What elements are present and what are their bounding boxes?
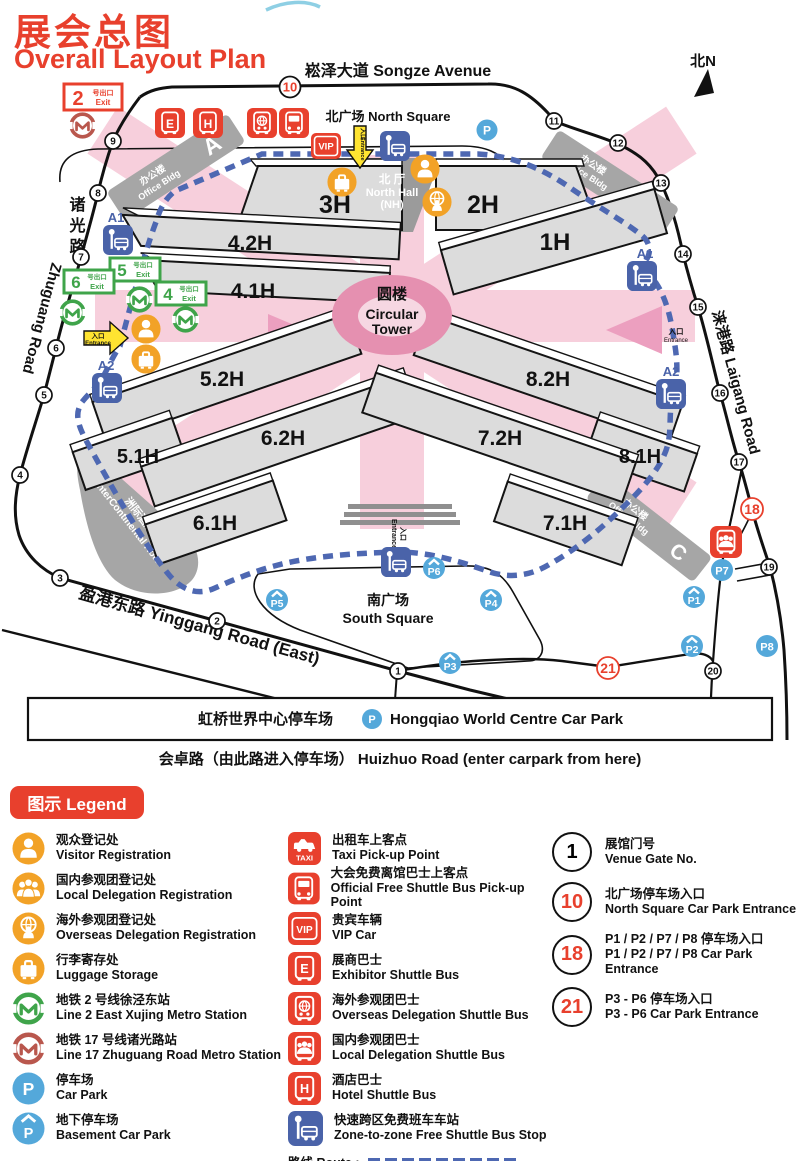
svg-text:VIP: VIP [296, 924, 313, 935]
luggage-storage-icon-west [131, 344, 160, 373]
svg-text:H: H [204, 117, 213, 131]
legend-item-official-shuttle: 大会免费离馆巴士上客点Official Free Shuttle Bus Pic… [288, 868, 550, 908]
metro-line17-icon [69, 114, 96, 137]
luggage-storage-icon [12, 952, 45, 985]
svg-text:4: 4 [163, 285, 173, 304]
shuttle-stop-icon-a1-east [627, 261, 657, 291]
basement-car-park-icon: P [12, 1112, 45, 1145]
svg-text:号出口: 号出口 [133, 260, 153, 269]
hall-label-6-2h: 6.2H [261, 427, 305, 450]
legend-item-line2-metro: 地铁 2 号线徐泾东站Line 2 East Xujing Metro Stat… [12, 988, 284, 1028]
svg-text:P: P [368, 714, 375, 726]
svg-text:P2: P2 [686, 644, 699, 656]
exhibitor-bus-icon-map: E [155, 108, 185, 138]
south-square-label-en: South Square [342, 610, 433, 626]
a2-label-east: A2 [663, 364, 680, 379]
svg-text:6: 6 [71, 273, 80, 292]
hall-label-5-1h: 5.1H [117, 446, 159, 468]
svg-text:5: 5 [117, 261, 126, 280]
south-entrance-steps [340, 504, 460, 525]
svg-text:入口: 入口 [91, 332, 105, 340]
shuttle-stop-icon-a2-east [656, 379, 686, 409]
svg-text:P5: P5 [271, 598, 284, 610]
legend-item-venue-gate: 1 展馆门号Venue Gate No. [552, 832, 798, 872]
metro-line2-icon [12, 992, 45, 1025]
legend-item-local-bus: 国内参观团巴士Local Delegation Shuttle Bus [288, 1028, 550, 1068]
hall-label-8-2h: 8.2H [526, 368, 570, 391]
gate-4: 4 [17, 471, 23, 482]
legend-item-luggage-storage: 行李寄存处Luggage Storage [12, 948, 284, 988]
gate-10-sample-icon: 10 [552, 882, 592, 922]
hotel-bus-icon-map: H [193, 108, 223, 138]
legend-item-overseas-delegation-registration: 海外参观团登记处Overseas Delegation Registration [12, 908, 284, 948]
svg-text:Entrance: Entrance [359, 137, 365, 161]
legend-route-row: 路线 Route : [288, 1148, 550, 1161]
local-delegation-bus-icon-map [710, 526, 742, 558]
legend-item-zone-shuttle-stop: 快速跨区免费班车车站Zone-to-zone Free Shuttle Bus … [288, 1108, 550, 1148]
overseas-bus-icon-map [247, 108, 277, 138]
svg-text:P8: P8 [760, 642, 773, 654]
compass-needle-icon [694, 69, 714, 97]
north-hall-label-zh: 北 厅 [379, 172, 406, 186]
svg-text:2: 2 [72, 88, 83, 110]
legend-item-local-delegation-registration: 国内参观团登记处Local Delegation Registration [12, 868, 284, 908]
gate-21: 21 [600, 660, 616, 676]
hotel-shuttle-bus-icon: H [288, 1072, 321, 1105]
svg-text:号出口: 号出口 [179, 284, 199, 293]
metro-line2-icon-1 [59, 301, 86, 324]
carpark-marker-p6: P6 [423, 557, 445, 579]
svg-text:入口: 入口 [668, 327, 684, 336]
svg-text:Entrance: Entrance [664, 338, 689, 344]
svg-text:号出口: 号出口 [93, 88, 114, 97]
route-label: 路线 Route : [288, 1152, 360, 1161]
local-delegation-bus-icon [288, 1032, 321, 1065]
gate-7: 7 [78, 253, 84, 264]
svg-text:P: P [23, 1078, 35, 1098]
svg-text:P1: P1 [688, 595, 701, 607]
carpark-marker-p5: P5 [266, 589, 288, 611]
legend-item-hotel-bus: H 酒店巴士Hotel Shuttle Bus [288, 1068, 550, 1108]
legend-item-exhibitor-bus: E 展商巴士Exhibitor Shuttle Bus [288, 948, 550, 988]
svg-text:VIP: VIP [318, 142, 334, 153]
hall-label-4-1h: 4.1H [231, 280, 275, 303]
hall-label-2h: 2H [467, 191, 499, 219]
gate-10: 10 [283, 80, 297, 95]
gate-2: 2 [214, 617, 220, 628]
svg-text:E: E [300, 961, 308, 975]
gate-8: 8 [95, 189, 101, 200]
gate-17: 17 [733, 458, 745, 469]
tower-label-en1: Circular [366, 306, 419, 322]
tower-label-zh: 圆楼 [377, 285, 407, 303]
gate-18-sample-icon: 18 [552, 935, 592, 975]
visitor-registration-icon-west [131, 314, 160, 343]
gate-13: 13 [655, 179, 667, 190]
overseas-registration-icon-north [422, 187, 451, 216]
hall-label-7-2h: 7.2H [478, 427, 522, 450]
hall-label-5-2h: 5.2H [200, 368, 244, 391]
hall-label-8-1h: 8.1H [619, 446, 661, 468]
a1-label-west: A1 [108, 210, 125, 225]
gate-12: 12 [612, 139, 624, 150]
taxi-pickup-icon: TAXI [288, 832, 321, 865]
carpark-marker-north: P [477, 120, 498, 141]
vip-car-icon-map: VIP [311, 133, 341, 159]
svg-text:Exit: Exit [182, 294, 196, 303]
carpark-marker-p8: P8 [756, 635, 778, 657]
svg-text:号出口: 号出口 [87, 272, 107, 281]
gate-5: 5 [41, 391, 47, 402]
official-shuttle-icon-map [279, 108, 309, 138]
gate-18: 18 [744, 501, 760, 517]
car-park-icon: P [12, 1072, 45, 1105]
exit-5-box: 5 号出口 Exit [110, 258, 160, 281]
metro-line2-icon-2 [126, 288, 153, 311]
a2-label-west: A2 [98, 358, 115, 373]
gate-1: 1 [395, 667, 401, 678]
svg-text:P3: P3 [444, 661, 457, 673]
legend-item-taxi: TAXI 出租车上客点Taxi Pick-up Point [288, 828, 550, 868]
visitor-registration-icon-north [410, 154, 439, 183]
overseas-delegation-bus-icon [288, 992, 321, 1025]
shuttle-stop-icon-north [380, 131, 410, 161]
huizhuo-road-label: 会卓路（由此路进入停车场） Huizhuo Road (enter carpar… [159, 750, 642, 768]
hongqiao-carpark-label-en: Hongqiao World Centre Car Park [390, 711, 624, 728]
a1-label-east: A1 [637, 246, 654, 261]
shuttle-stop-icon-south [381, 547, 411, 577]
compass-label: 北N [690, 53, 716, 70]
songze-avenue-label: 崧泽大道 Songze Avenue [305, 61, 491, 80]
zhuguang-road-label-en: Zhuguang Road [19, 261, 65, 376]
gate-20: 20 [707, 667, 719, 678]
hongqiao-carpark-label-zh: 虹桥世界中心停车场 [198, 710, 333, 728]
legend-column-2: TAXI 出租车上客点Taxi Pick-up Point 大会免费离馆巴士上客… [288, 828, 550, 1161]
circular-tower: 圆楼 Circular Tower [332, 275, 452, 355]
exit-4-box: 4 号出口 Exit [156, 282, 206, 305]
carpark-marker-p1: P1 [683, 586, 705, 608]
hall-label-7-1h: 7.1H [543, 512, 587, 535]
vip-car-icon: VIP [288, 912, 321, 945]
hall-label-4-2h: 4.2H [228, 232, 272, 255]
svg-text:P7: P7 [715, 566, 728, 578]
svg-text:E: E [166, 117, 174, 131]
gate-21-sample-icon: 21 [552, 987, 592, 1027]
gate-3: 3 [57, 574, 63, 585]
gate-19: 19 [763, 563, 775, 574]
legend-item-basement-car-park: P 地下停车场Basement Car Park [12, 1108, 284, 1148]
north-square-label: 北广场 North Square [326, 109, 451, 124]
svg-text:Zhuguang Road: Zhuguang Road [19, 261, 65, 376]
luggage-storage-icon-north [327, 167, 356, 196]
carpark-marker-p7: P7 [711, 559, 733, 581]
venue-map: 办公楼 Office Bldg A 办公楼 Office Bldg B 办公楼 … [0, 0, 800, 778]
legend-item-north-square-carpark-entrance: 10 北广场停车场入口North Square Car Park Entranc… [552, 882, 798, 922]
page-title-en: Overall Layout Plan [14, 44, 266, 75]
shuttle-stop-icon-a2-west [92, 373, 122, 403]
gate-9: 9 [110, 137, 116, 148]
exit-2-box: 2 号出口 Exit [64, 84, 122, 110]
carpark-marker-p4: P4 [480, 589, 502, 611]
legend-item-vip-car: VIP 贵宾车辆VIP Car [288, 908, 550, 948]
compass-north: 北N [690, 53, 716, 97]
legend-header-badge: 图示 Legend [10, 786, 144, 819]
gate-11: 11 [549, 117, 560, 128]
shuttle-stop-icon-a1-west [103, 225, 133, 255]
legend-column-1: 观众登记处Visitor Registration 国内参观团登记处Local … [12, 828, 284, 1148]
svg-text:入口: 入口 [399, 526, 407, 541]
carpark-marker-p2: P2 [681, 635, 703, 657]
svg-text:P: P [24, 1126, 34, 1142]
legend-item-line17-metro: 地铁 17 号线诸光路站Line 17 Zhuguang Road Metro … [12, 1028, 284, 1068]
overseas-delegation-registration-icon [12, 912, 45, 945]
svg-text:P: P [483, 124, 491, 138]
gate-6: 6 [53, 344, 59, 355]
svg-text:Entrance: Entrance [390, 519, 397, 549]
local-delegation-registration-icon [12, 872, 45, 905]
north-hall-label-code: (NH) [380, 199, 404, 211]
zone-shuttle-stop-icon [288, 1111, 323, 1146]
decorative-swoosh [266, 2, 320, 10]
svg-text:Exit: Exit [96, 98, 111, 107]
exit-6-box: 6 号出口 Exit [64, 270, 114, 293]
overall-layout-plan-page: 办公楼 Office Bldg A 办公楼 Office Bldg B 办公楼 … [0, 0, 800, 1161]
north-hall-label-en: North Hall [366, 187, 419, 199]
metro-line2-icon-3 [172, 308, 199, 331]
gate-15: 15 [692, 303, 704, 314]
svg-text:P6: P6 [428, 566, 441, 578]
legend-item-p36-carpark-entrance: 21 P3 - P6 停车场入口P3 - P6 Car Park Entranc… [552, 987, 798, 1027]
legend-item-car-park: P 停车场Car Park [12, 1068, 284, 1108]
carpark-marker-p3: P3 [439, 652, 461, 674]
legend-item-visitor-registration: 观众登记处Visitor Registration [12, 828, 284, 868]
svg-text:Exit: Exit [90, 282, 104, 291]
hall-label-1h: 1H [540, 229, 571, 256]
svg-text:P4: P4 [485, 598, 498, 610]
svg-text:Exit: Exit [136, 270, 150, 279]
gate-14: 14 [677, 250, 689, 261]
official-shuttle-bus-icon [288, 872, 320, 905]
hongqiao-carpark-p-icon: P [362, 709, 382, 729]
south-square-label-zh: 南广场 [367, 592, 409, 608]
svg-text:TAXI: TAXI [296, 853, 313, 862]
svg-text:H: H [300, 1081, 309, 1095]
exhibitor-shuttle-bus-icon: E [288, 952, 321, 985]
tower-label-en2: Tower [372, 321, 413, 337]
hall-label-6-1h: 6.1H [193, 512, 237, 535]
visitor-registration-icon [12, 832, 45, 865]
svg-text:Entrance: Entrance [85, 341, 111, 347]
legend-item-overseas-bus: 海外参观团巴士Overseas Delegation Shuttle Bus [288, 988, 550, 1028]
gate-number-sample-icon: 1 [552, 832, 592, 872]
legend-item-p1278-carpark-entrance: 18 P1 / P2 / P7 / P8 停车场入口P1 / P2 / P7 /… [552, 932, 798, 977]
gate-16: 16 [714, 389, 726, 400]
metro-line17-icon [12, 1032, 45, 1065]
legend-column-3: 1 展馆门号Venue Gate No. 10 北广场停车场入口North Sq… [552, 832, 798, 1027]
